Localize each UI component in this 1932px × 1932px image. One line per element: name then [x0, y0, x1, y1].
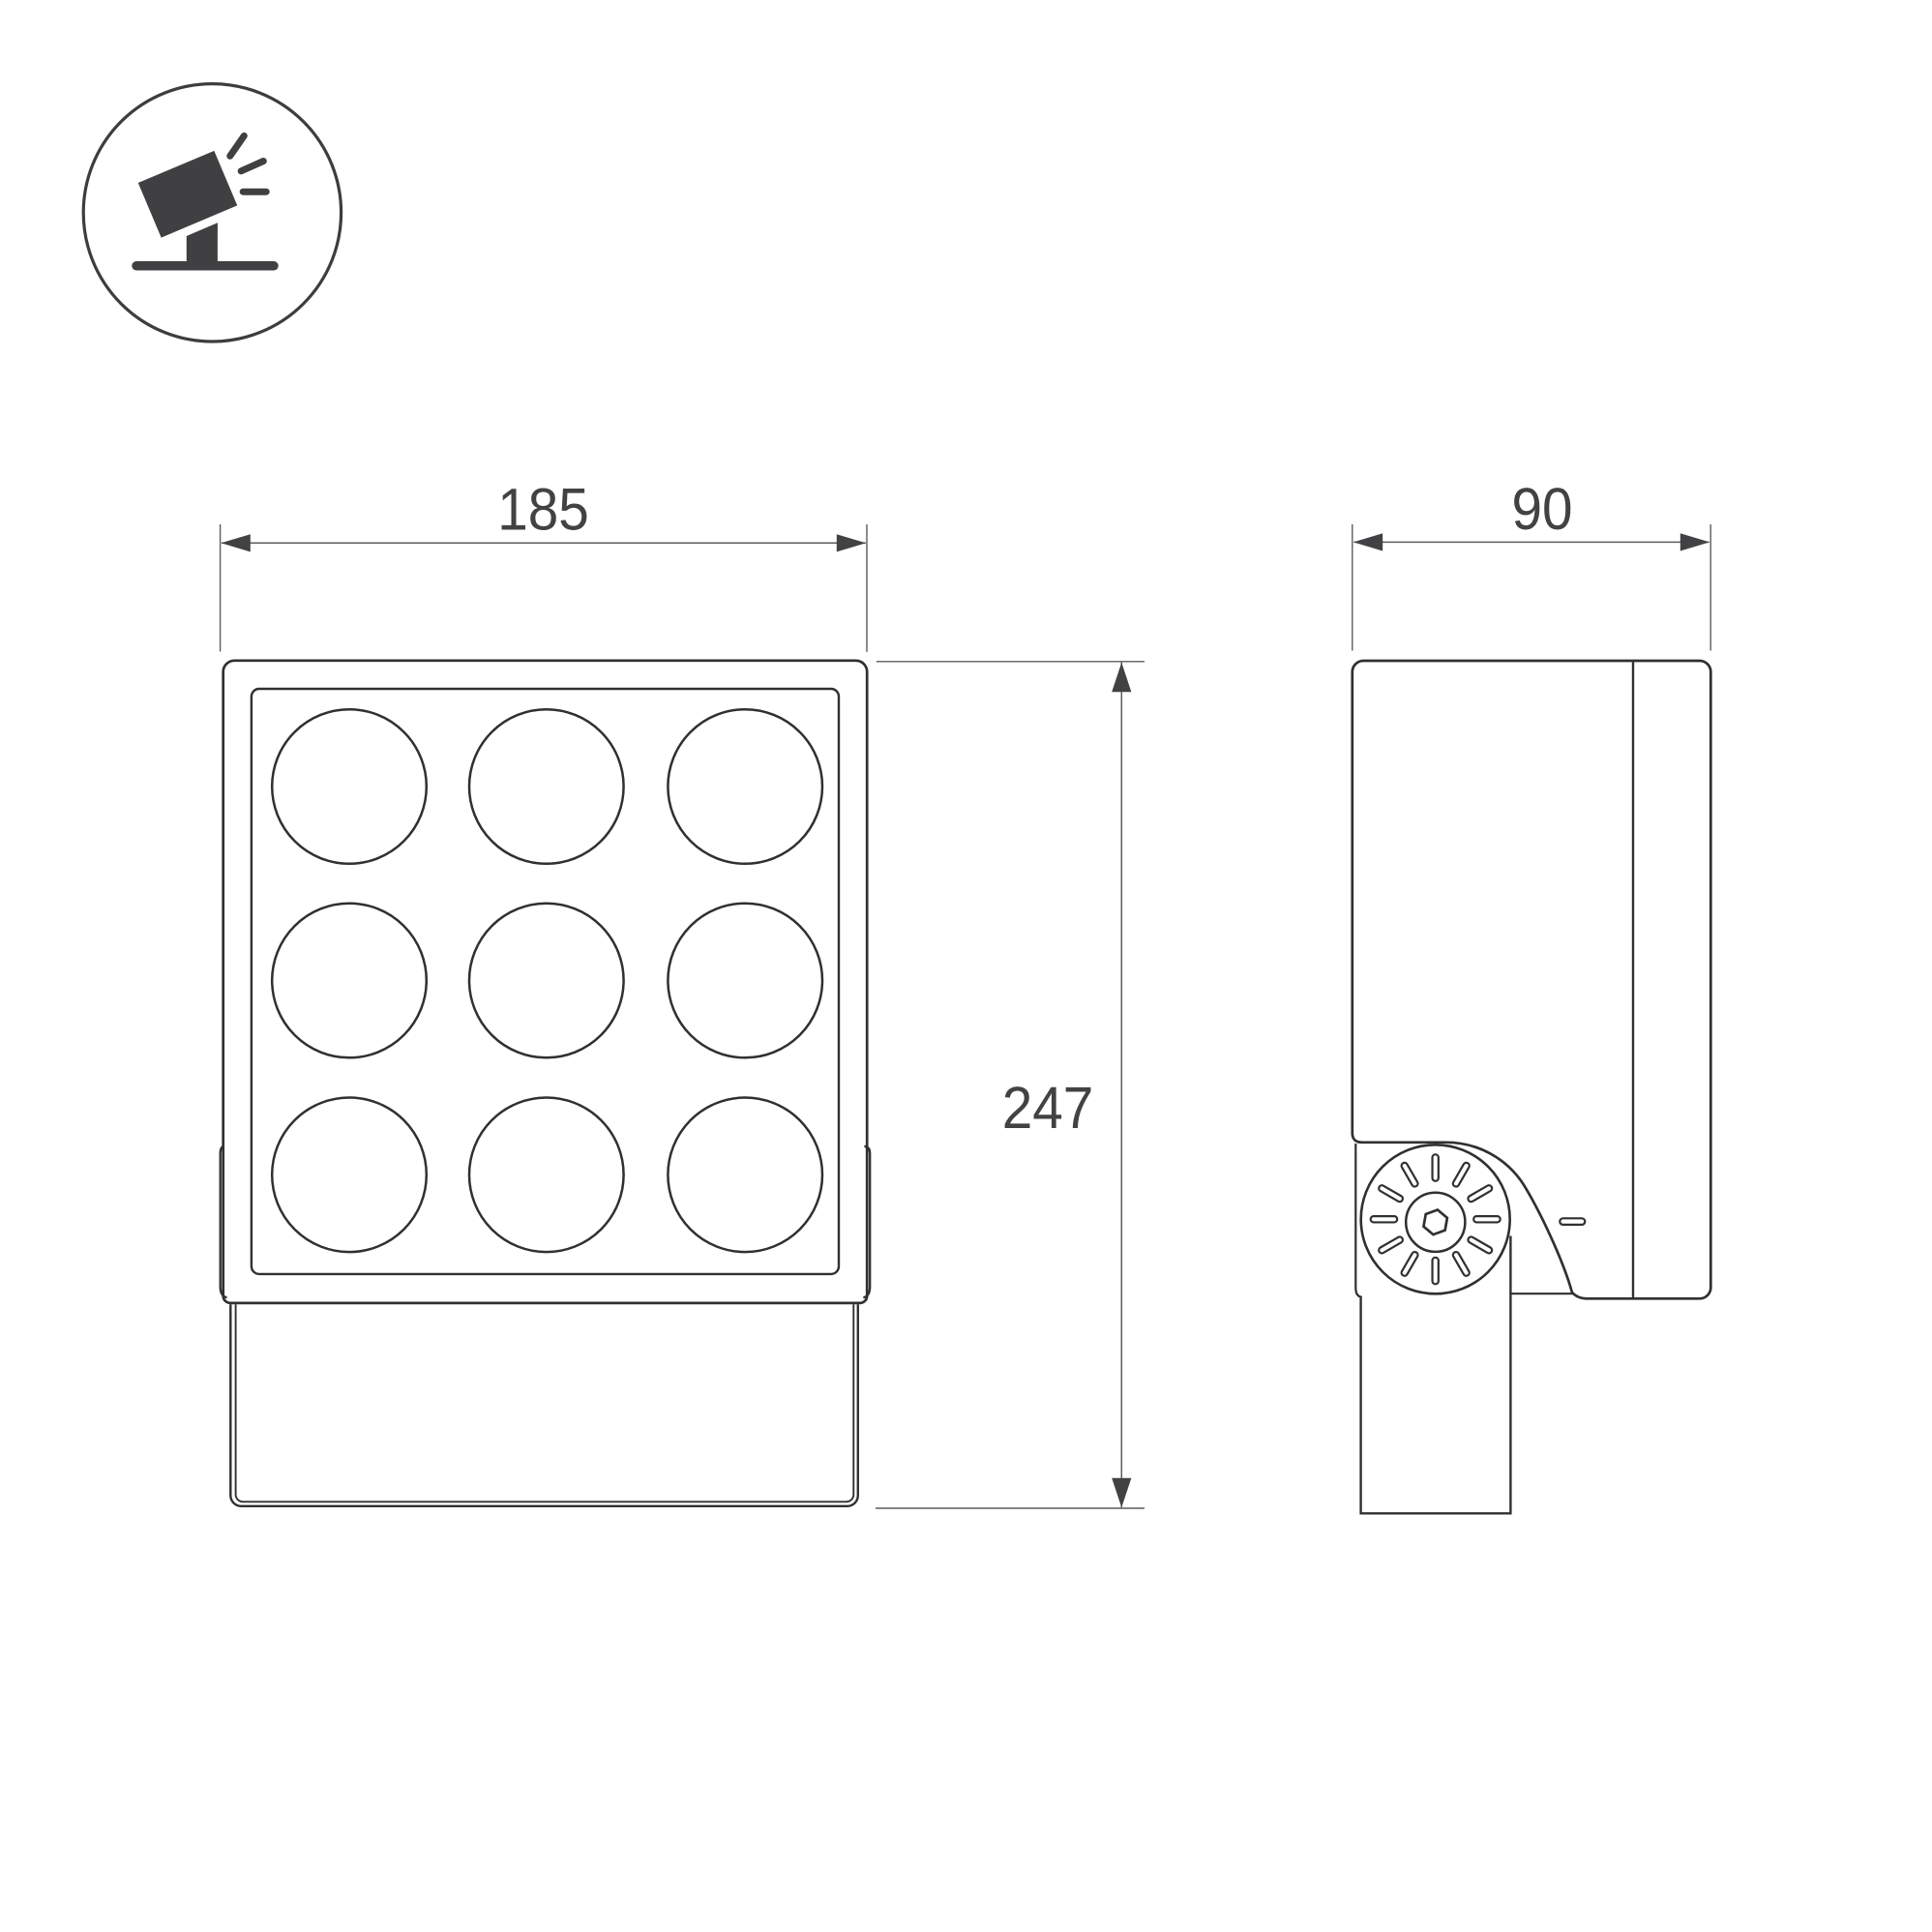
svg-text:185: 185 [497, 478, 589, 543]
svg-text:90: 90 [1511, 477, 1572, 542]
svg-text:247: 247 [1002, 1076, 1094, 1141]
